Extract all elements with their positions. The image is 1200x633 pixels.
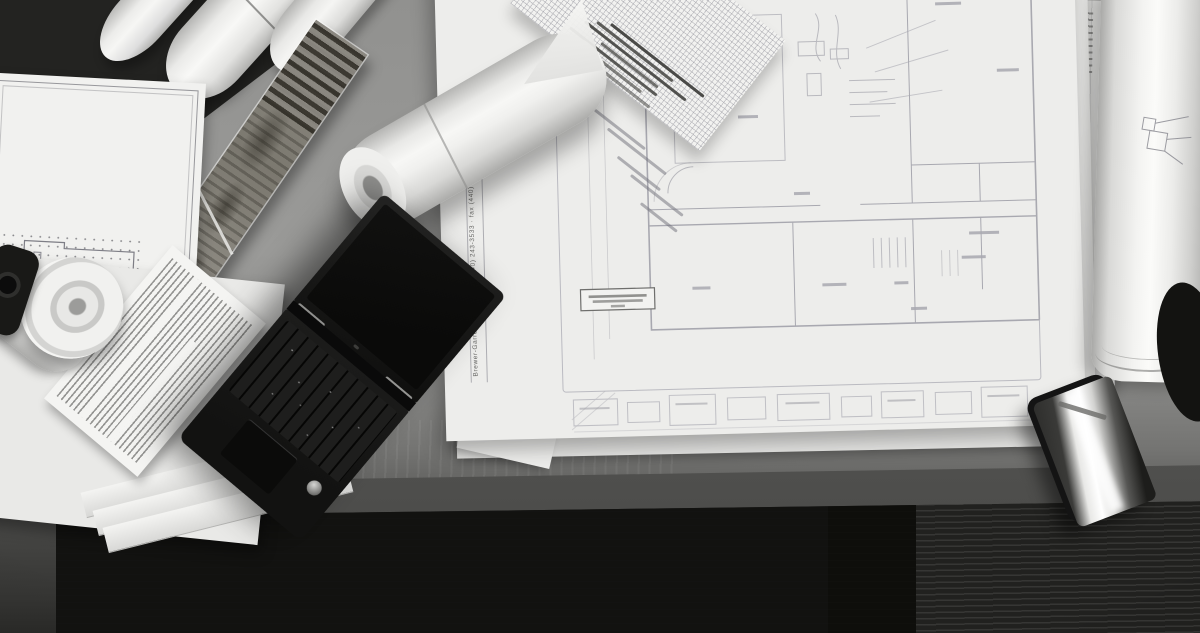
detail-sketch bbox=[1118, 97, 1200, 174]
photo-architects-desk: Brewer-Garrett.com · phone (440) 243-353… bbox=[0, 0, 1200, 633]
blueprint-note-box bbox=[580, 288, 655, 311]
laptop-logo-badge bbox=[304, 477, 325, 498]
ring-detail bbox=[0, 269, 24, 302]
old-drawing-crack bbox=[197, 188, 234, 255]
roll-ring-line bbox=[423, 103, 468, 189]
blueprint-elevation-strip bbox=[571, 380, 1036, 432]
desk-side-panel bbox=[0, 516, 56, 633]
laptop-webcam bbox=[353, 344, 360, 350]
